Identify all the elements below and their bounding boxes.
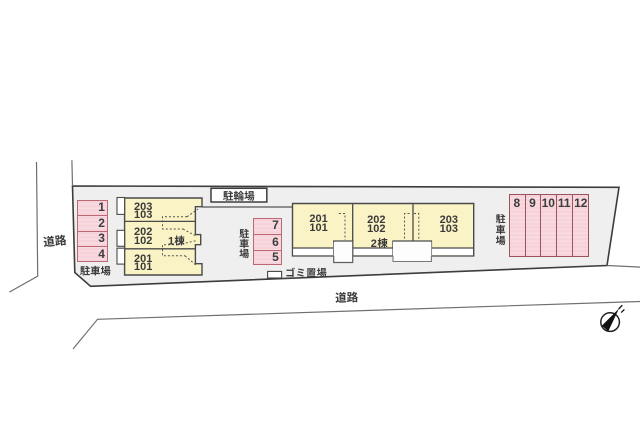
- svg-text:1: 1: [168, 235, 174, 247]
- svg-text:2: 2: [371, 238, 377, 250]
